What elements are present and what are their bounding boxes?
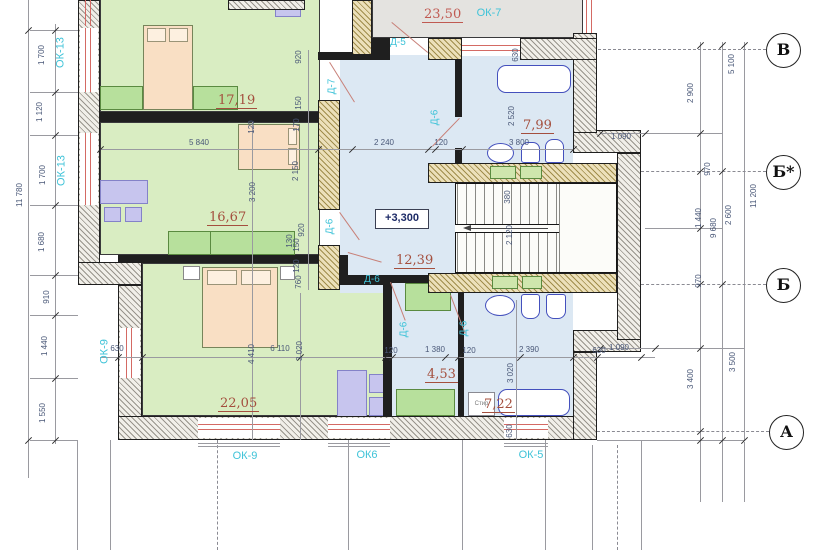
ext-line: [592, 445, 593, 550]
wall: [100, 112, 340, 122]
dim-label: 3 020: [295, 334, 305, 368]
dim-label: 970: [703, 152, 713, 186]
dim-label: 760: [294, 265, 304, 299]
area-label-bedroom-bottom: 22,05: [218, 396, 259, 412]
wardrobe-divider: [210, 232, 211, 254]
dim-label: 630: [511, 38, 521, 72]
ext-line: [722, 442, 723, 502]
dim-label: 2 520: [507, 99, 517, 133]
wall-inset: [520, 166, 542, 179]
wall-exterior: [573, 352, 597, 440]
grid-axis-a: А: [769, 415, 804, 450]
ext-line: [77, 440, 78, 550]
window-ok9-bottom: [198, 418, 280, 438]
dim-label: 1 700: [38, 158, 48, 192]
door-label-d6-bedroom: Д-6: [325, 207, 336, 247]
center-line: [217, 440, 218, 550]
grid-axis-b-star: Б*: [766, 155, 801, 190]
window-label-ok6: ОК6: [347, 450, 387, 461]
dim-label: 3 800: [502, 138, 536, 148]
dim-label: 1 090: [604, 132, 638, 142]
dim-line: [308, 50, 309, 290]
glazing: [198, 429, 280, 430]
stair-landing-line: [559, 184, 560, 272]
area-label-bedroom-mid: 16,67: [207, 210, 248, 226]
dim-label: 3 200: [248, 175, 258, 209]
toilet: [546, 294, 566, 319]
wall-exterior: [617, 153, 641, 340]
dim-label: 2 150: [291, 154, 301, 188]
dim-label: 170: [292, 108, 302, 142]
window-ok6: [328, 418, 390, 438]
dim-label: 120: [424, 138, 458, 148]
dim-label: 3 400: [686, 362, 696, 396]
wall-inset: [490, 166, 516, 179]
dim-label: 1 380: [418, 345, 452, 355]
dim-label: 2 390: [512, 345, 546, 355]
dim-line: [744, 42, 745, 440]
ext-line: [110, 440, 111, 550]
door-label-d5: Д-5: [378, 37, 418, 48]
wall-exterior: [228, 0, 305, 10]
dim-label: 1 440: [40, 329, 50, 363]
dim-line: [55, 24, 56, 444]
grid-axis-v: В: [766, 33, 801, 68]
wall-inset: [492, 276, 518, 289]
dim-label: 9 680: [709, 211, 719, 245]
glazing: [198, 424, 280, 425]
axis-line-a: [597, 431, 769, 432]
window-label-ok9-side: ОК-9: [100, 332, 111, 372]
ext-line: [744, 442, 745, 502]
dim-label: 11 200: [749, 179, 759, 213]
door-label-d7: Д-7: [327, 67, 338, 107]
sill-line: [328, 443, 390, 444]
pillow: [169, 28, 188, 42]
ext-line: [462, 440, 463, 550]
dim-label: 1 700: [37, 38, 47, 72]
glazing: [85, 133, 86, 205]
glazing: [85, 28, 86, 92]
desk: [337, 370, 367, 420]
area-label-bedroom-top: 17,19: [216, 93, 257, 109]
window-ok13-upper: [80, 28, 98, 92]
door-label-d6-bath: Д-6: [430, 98, 441, 138]
dim-label: 6 110: [263, 344, 297, 354]
chair: [104, 207, 121, 222]
door-label-d6-wc: Д-6: [459, 309, 470, 349]
dim-label: 1 120: [35, 95, 45, 129]
glazing: [85, 0, 86, 26]
pillow: [207, 270, 237, 285]
stair-direction-arrow: [463, 225, 471, 231]
window-ok13-lower: [80, 133, 98, 205]
sill-line: [328, 446, 390, 447]
dim-label: 920: [294, 40, 304, 74]
dim-label: 3 500: [728, 345, 738, 379]
area-label-bathroom-bottom: 7,22: [482, 397, 515, 413]
dim-line: [516, 300, 517, 440]
glazing: [90, 0, 91, 26]
center-line: [617, 445, 618, 550]
window-label-ok9-bottom: ОК-9: [225, 451, 265, 462]
dim-line: [722, 42, 723, 442]
dim-label: 2 600: [724, 198, 734, 232]
glazing: [328, 424, 390, 425]
sill-line: [198, 446, 280, 447]
dim-label: 2 240: [367, 138, 401, 148]
dim-label: 2 120: [505, 218, 515, 252]
wall-pier: [318, 245, 340, 290]
dim-label: 120: [247, 110, 257, 144]
glazing: [328, 429, 390, 430]
dim-label: 130: [285, 224, 295, 258]
bathtub: [497, 65, 571, 93]
dim-label: 970: [694, 264, 704, 298]
dim-label: 3 020: [506, 356, 516, 390]
area-label-terrace: 23,50: [422, 7, 463, 23]
ext-line: [641, 440, 642, 550]
dim-line: [252, 122, 253, 440]
wall-exterior: [520, 38, 597, 60]
toilet: [521, 294, 540, 319]
door-label-d6-storage: Д-6: [399, 310, 410, 350]
window-label-ok5: ОК-5: [511, 450, 551, 461]
cabinet: [100, 86, 143, 110]
dim-line: [700, 42, 701, 442]
area-label-bathroom-top: 7,99: [521, 118, 554, 134]
ext-line: [700, 442, 701, 502]
glazing: [90, 28, 91, 92]
wall-exterior: [78, 262, 142, 285]
dim-label: 11 780: [15, 178, 25, 212]
glazing: [591, 0, 592, 33]
dim-label: 630: [582, 346, 616, 356]
wall: [118, 255, 348, 263]
window-label-ok13-lower: ОК-13: [57, 151, 68, 191]
glazing: [90, 133, 91, 205]
window-label-ok13-upper: ОК-13: [56, 33, 67, 73]
dim-label: 1 680: [37, 225, 47, 259]
glazing: [586, 0, 587, 33]
toilet: [545, 139, 564, 163]
dim-label: 2 900: [686, 76, 696, 110]
wardrobe: [168, 231, 295, 255]
wall-pier: [318, 100, 340, 210]
dim-label: 380: [503, 180, 513, 214]
sink: [485, 295, 515, 316]
dim-label: 1 440: [694, 201, 704, 235]
door-label-d6-hall: Д-6: [352, 274, 392, 285]
floor-plan: Стир: [0, 0, 825, 550]
wall-pier: [428, 38, 462, 60]
dim-label: 5 840: [182, 138, 216, 148]
dim-label: 630: [505, 414, 515, 448]
dim-label: 1 550: [38, 396, 48, 430]
dim-label: 4 410: [247, 337, 257, 371]
pillow: [147, 28, 166, 42]
pillow: [241, 270, 271, 285]
nightstand: [183, 266, 200, 280]
area-label-hall: 12,39: [394, 253, 435, 269]
dim-line: [100, 149, 573, 150]
grid-axis-b: Б: [766, 268, 801, 303]
cabinet: [396, 389, 455, 416]
chair: [125, 207, 142, 222]
dim-label: 910: [42, 280, 52, 314]
area-label-storage: 4,53: [425, 367, 458, 383]
wall-pier: [352, 0, 372, 55]
wall: [455, 55, 462, 117]
window-label-ok7: ОК-7: [469, 8, 509, 19]
dim-label: 5 100: [727, 47, 737, 81]
sill-line: [198, 443, 280, 444]
elevation-mark: +3,300: [375, 209, 429, 229]
dim-line: [28, 0, 29, 478]
wall-inset: [522, 276, 542, 289]
desk: [100, 180, 148, 204]
